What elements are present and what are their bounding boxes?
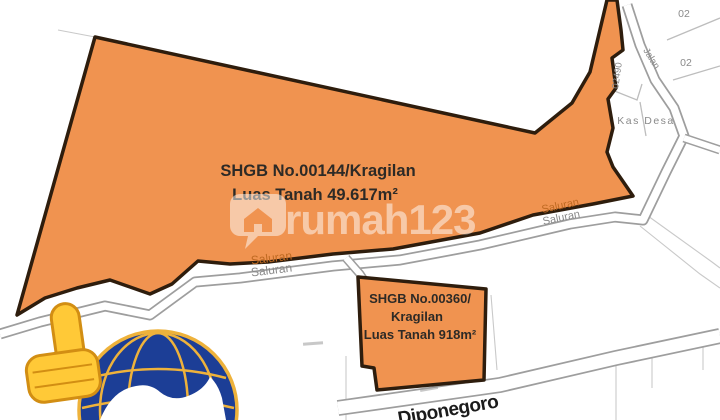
site-plan-map: Saluran Saluran Saluran Saluran Kas Desa… [0,0,720,420]
site-plan-screenshot: Saluran Saluran Saluran Saluran Kas Desa… [0,0,720,420]
main-parcel-label-line1: SHGB No.00144/Kragilan [220,162,415,180]
block-number-top: 02 [678,8,690,20]
rumah123-watermark-text: rumah123 [285,196,475,243]
small-parcel-label-line3: Luas Tanah 918m² [364,327,477,342]
small-parcel-label-line1: SHGB No.00360/ [369,291,471,306]
kas-desa-label: Kas Desa [617,115,675,127]
small-parcel-label-line2: Kragilan [391,309,443,324]
block-number-mid: 02 [680,57,692,69]
